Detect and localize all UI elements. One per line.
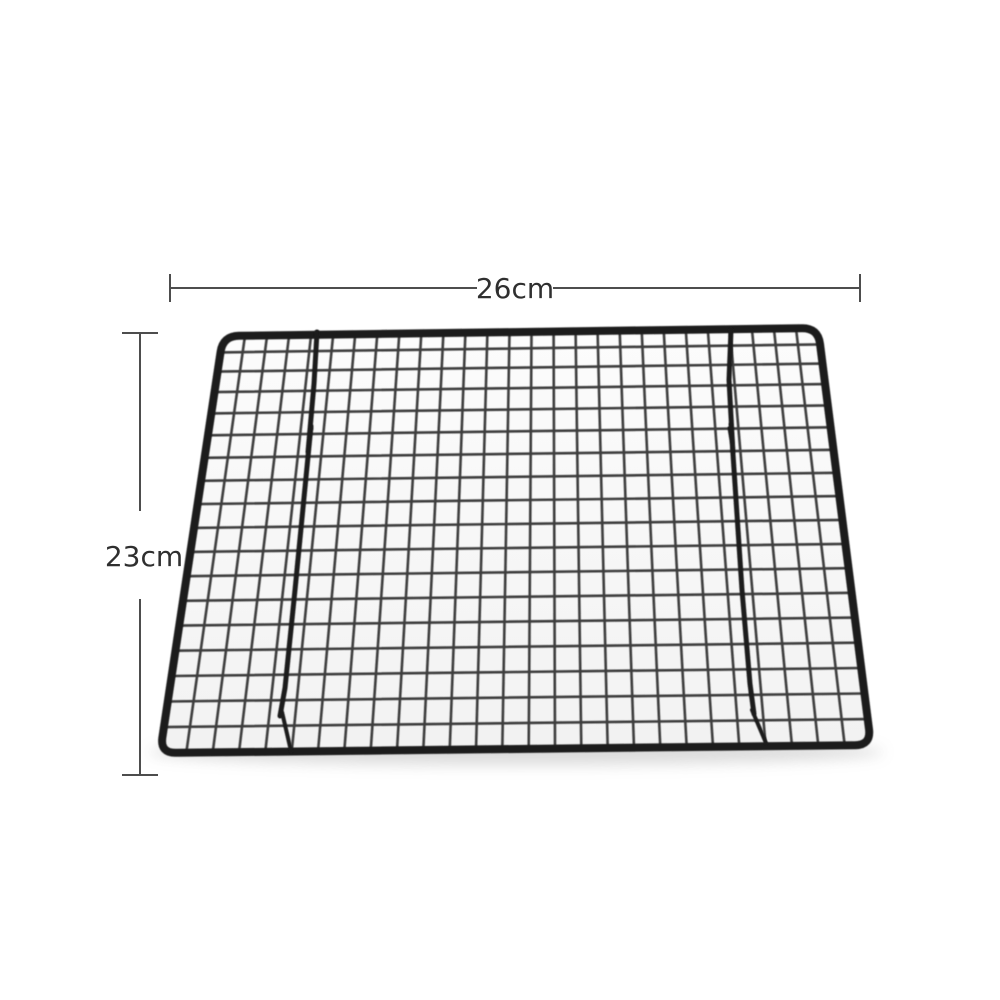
grid-wire-vertical [554,332,555,749]
height-dimension-label: 23cm [105,540,183,573]
cooling-rack [162,328,869,753]
product-image: 26cm 23cm [0,0,1000,1000]
scene: 26cm 23cm [0,0,1000,1000]
width-dimension-label: 26cm [476,272,554,305]
